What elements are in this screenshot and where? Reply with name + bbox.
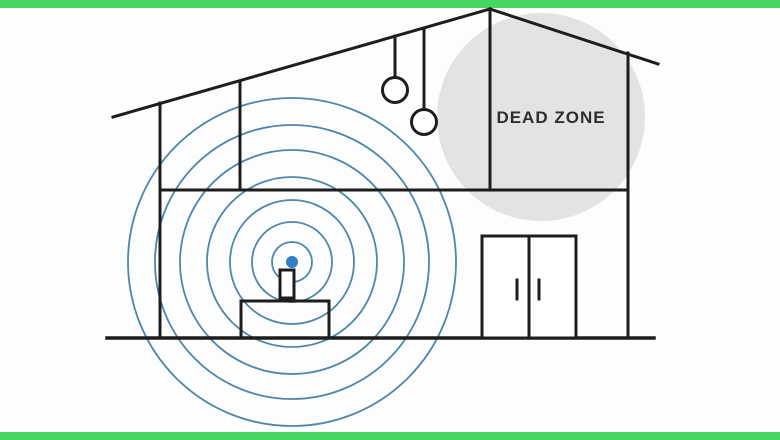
router-antenna-dot xyxy=(286,256,298,268)
pendant-light-1 xyxy=(383,36,408,103)
wifi-dead-zone-illustration: DEAD ZONE xyxy=(0,0,780,440)
wifi-router xyxy=(280,270,294,298)
pendant-bulb-icon xyxy=(383,78,408,103)
dead-zone-label: DEAD ZONE xyxy=(496,108,605,127)
front-door xyxy=(482,236,576,338)
pendant-bulb-icon xyxy=(412,110,437,135)
top-border-bar xyxy=(0,0,780,8)
roof-left-slope xyxy=(113,9,490,117)
bottom-border-bar xyxy=(0,432,780,440)
pendant-light-2 xyxy=(412,28,437,135)
house-diagram-canvas: DEAD ZONE xyxy=(0,0,780,440)
router-table-group xyxy=(241,256,329,338)
